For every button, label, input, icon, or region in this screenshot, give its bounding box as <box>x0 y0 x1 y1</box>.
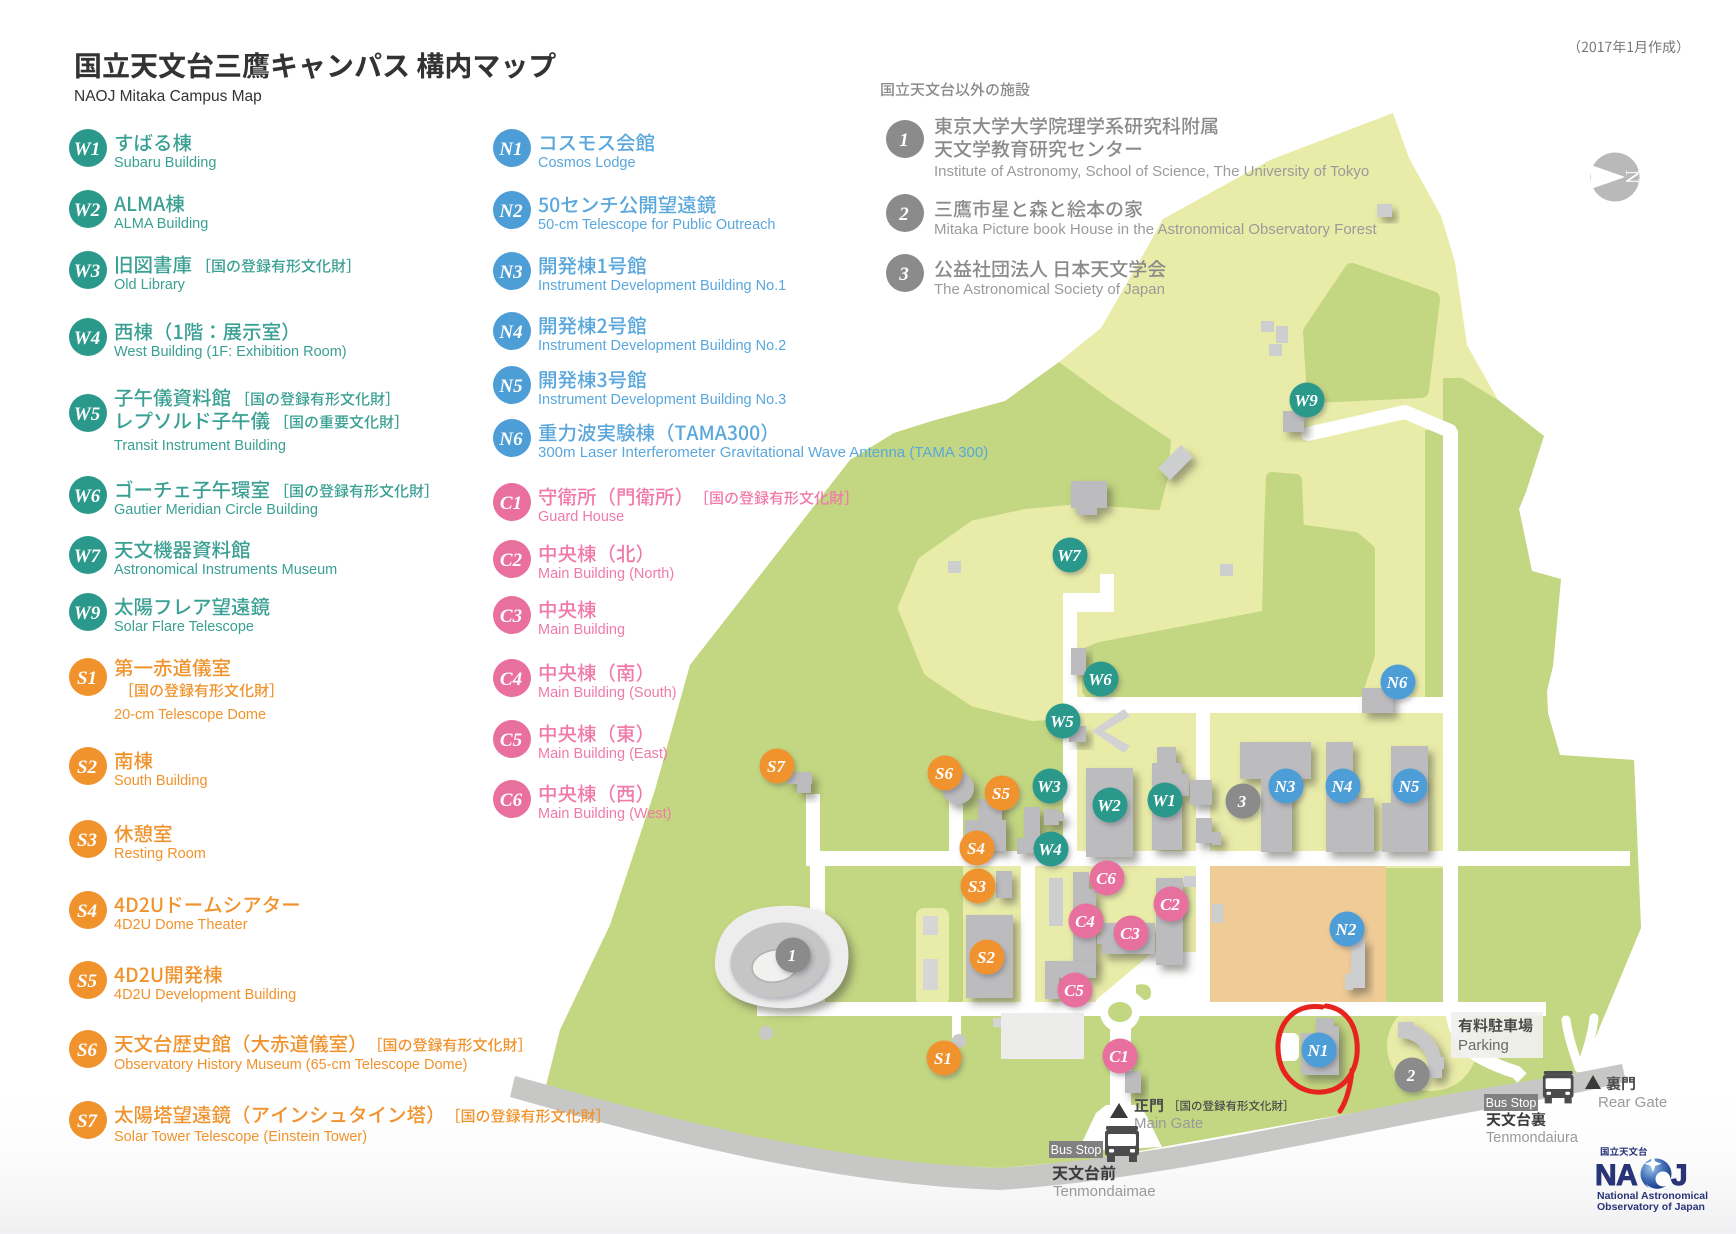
svg-text:C6: C6 <box>1096 869 1116 888</box>
svg-text:1: 1 <box>899 130 909 151</box>
svg-text:C4: C4 <box>1075 912 1095 931</box>
svg-text:South Building: South Building <box>114 773 208 789</box>
svg-text:N: N <box>1621 170 1642 184</box>
svg-text:Main Building: Main Building <box>538 622 625 638</box>
svg-text:Old Library: Old Library <box>114 277 186 293</box>
svg-text:C1: C1 <box>500 493 522 514</box>
svg-text:Tenmondaiura: Tenmondaiura <box>1486 1130 1579 1146</box>
svg-text:Astronomical Instruments Museu: Astronomical Instruments Museum <box>114 562 337 578</box>
svg-text:N4: N4 <box>498 322 522 343</box>
svg-text:Mitaka Picture book House in t: Mitaka Picture book House in the Astrono… <box>934 221 1378 238</box>
svg-text:Gautier Meridian Circle Buildi: Gautier Meridian Circle Building <box>114 502 318 518</box>
svg-text:West Building (1F: Exhibition: West Building (1F: Exhibition Room) <box>114 344 347 360</box>
svg-text:Solar Flare Telescope: Solar Flare Telescope <box>114 619 254 635</box>
svg-text:The Astronomical Society of Ja: The Astronomical Society of Japan <box>934 281 1165 298</box>
svg-text:Cosmos Lodge: Cosmos Lodge <box>538 155 636 171</box>
svg-text:C2: C2 <box>500 550 523 571</box>
svg-text:N6: N6 <box>498 429 523 450</box>
svg-text:Bus Stop: Bus Stop <box>1051 1143 1102 1157</box>
svg-text:2: 2 <box>898 204 909 225</box>
svg-text:W1: W1 <box>74 139 100 160</box>
svg-text:S2: S2 <box>977 948 995 967</box>
svg-text:C1: C1 <box>1109 1047 1129 1066</box>
svg-text:Instrument Development Buildin: Instrument Development Building No.2 <box>538 338 786 354</box>
svg-text:Instrument Development Buildin: Instrument Development Building No.3 <box>538 392 786 408</box>
svg-text:Solar Tower Telescope (Einstei: Solar Tower Telescope (Einstein Tower) <box>114 1129 367 1145</box>
svg-text:20-cm Telescope Dome: 20-cm Telescope Dome <box>114 707 266 723</box>
svg-text:W5: W5 <box>1050 712 1074 731</box>
svg-text:N3: N3 <box>498 262 522 283</box>
svg-text:ALMA Building: ALMA Building <box>114 216 208 232</box>
svg-text:S6: S6 <box>77 1040 98 1061</box>
svg-text:N2: N2 <box>1335 920 1357 939</box>
svg-text:NA: NA <box>1595 1159 1637 1192</box>
svg-text:W6: W6 <box>74 486 101 507</box>
svg-text:N3: N3 <box>1274 777 1296 796</box>
svg-text:2: 2 <box>1406 1066 1416 1085</box>
svg-text:N1: N1 <box>1307 1041 1329 1060</box>
svg-text:Main Gate: Main Gate <box>1134 1115 1203 1132</box>
svg-text:Main Building (East): Main Building (East) <box>538 746 668 762</box>
svg-text:J: J <box>1671 1159 1688 1192</box>
svg-text:Rear Gate: Rear Gate <box>1598 1094 1667 1111</box>
svg-text:W2: W2 <box>1097 796 1121 815</box>
svg-text:W9: W9 <box>1294 391 1318 410</box>
svg-text:S7: S7 <box>767 757 786 776</box>
svg-text:C5: C5 <box>1064 981 1084 1000</box>
svg-text:S4: S4 <box>77 901 97 922</box>
svg-text:NAOJ Mitaka Campus Map: NAOJ Mitaka Campus Map <box>74 88 262 105</box>
svg-text:S7: S7 <box>77 1111 99 1132</box>
svg-text:N1: N1 <box>498 139 522 160</box>
svg-text:50-cm Telescope for Public Out: 50-cm Telescope for Public Outreach <box>538 217 776 233</box>
svg-text:Main Building (North): Main Building (North) <box>538 566 674 582</box>
svg-text:S3: S3 <box>968 877 986 896</box>
svg-text:3: 3 <box>898 264 909 285</box>
svg-text:Institute of Astronomy, School: Institute of Astronomy, School of Scienc… <box>934 163 1369 180</box>
svg-text:1: 1 <box>788 946 797 965</box>
svg-text:S3: S3 <box>77 830 97 851</box>
svg-text:N5: N5 <box>498 376 523 397</box>
svg-text:C3: C3 <box>500 606 522 627</box>
svg-text:Observatory of Japan: Observatory of Japan <box>1597 1201 1705 1213</box>
svg-text:Main Building (South): Main Building (South) <box>538 685 677 701</box>
svg-text:W7: W7 <box>1057 546 1082 565</box>
svg-text:N5: N5 <box>1398 777 1420 796</box>
svg-text:Observatory History Museum (65: Observatory History Museum (65-cm Telesc… <box>114 1057 467 1073</box>
svg-text:Parking: Parking <box>1458 1037 1509 1054</box>
svg-text:W1: W1 <box>1152 791 1176 810</box>
svg-text:C3: C3 <box>1120 924 1140 943</box>
svg-text:Transit Instrument Building: Transit Instrument Building <box>114 438 286 454</box>
svg-text:Guard House: Guard House <box>538 509 624 525</box>
svg-text:S5: S5 <box>77 971 98 992</box>
svg-text:W4: W4 <box>74 328 100 349</box>
svg-text:C2: C2 <box>1160 895 1180 914</box>
svg-text:W4: W4 <box>1038 840 1062 859</box>
svg-text:S1: S1 <box>77 668 97 689</box>
svg-text:Tenmondaimae: Tenmondaimae <box>1053 1183 1156 1200</box>
svg-text:4D2U Dome Theater: 4D2U Dome Theater <box>114 917 248 933</box>
svg-text:S1: S1 <box>934 1049 952 1068</box>
svg-text:C4: C4 <box>500 669 522 690</box>
svg-text:N6: N6 <box>1386 673 1408 692</box>
svg-text:Instrument Development Buildin: Instrument Development Building No.1 <box>538 278 786 294</box>
svg-text:C6: C6 <box>500 790 523 811</box>
svg-text:Resting Room: Resting Room <box>114 846 206 862</box>
svg-text:W7: W7 <box>74 546 102 567</box>
svg-text:W3: W3 <box>1037 777 1061 796</box>
svg-text:W9: W9 <box>74 603 101 624</box>
svg-text:N4: N4 <box>1331 777 1353 796</box>
svg-text:S4: S4 <box>967 839 985 858</box>
svg-text:W3: W3 <box>74 261 100 282</box>
svg-text:S6: S6 <box>935 764 953 783</box>
svg-text:S2: S2 <box>77 757 98 778</box>
svg-text:C5: C5 <box>500 730 523 751</box>
svg-text:Subaru Building: Subaru Building <box>114 155 216 171</box>
svg-text:W5: W5 <box>74 404 101 425</box>
svg-text:4D2U Development Building: 4D2U Development Building <box>114 987 296 1003</box>
svg-text:W6: W6 <box>1088 670 1112 689</box>
svg-text:S5: S5 <box>992 784 1010 803</box>
svg-text:W2: W2 <box>74 200 101 221</box>
svg-text:300m Laser Interferometer Grav: 300m Laser Interferometer Gravitational … <box>538 444 988 461</box>
svg-text:Bus Stop: Bus Stop <box>1486 1096 1537 1110</box>
svg-text:N2: N2 <box>498 201 523 222</box>
svg-text:3: 3 <box>1237 792 1247 811</box>
svg-text:Main Building (West): Main Building (West) <box>538 806 672 822</box>
